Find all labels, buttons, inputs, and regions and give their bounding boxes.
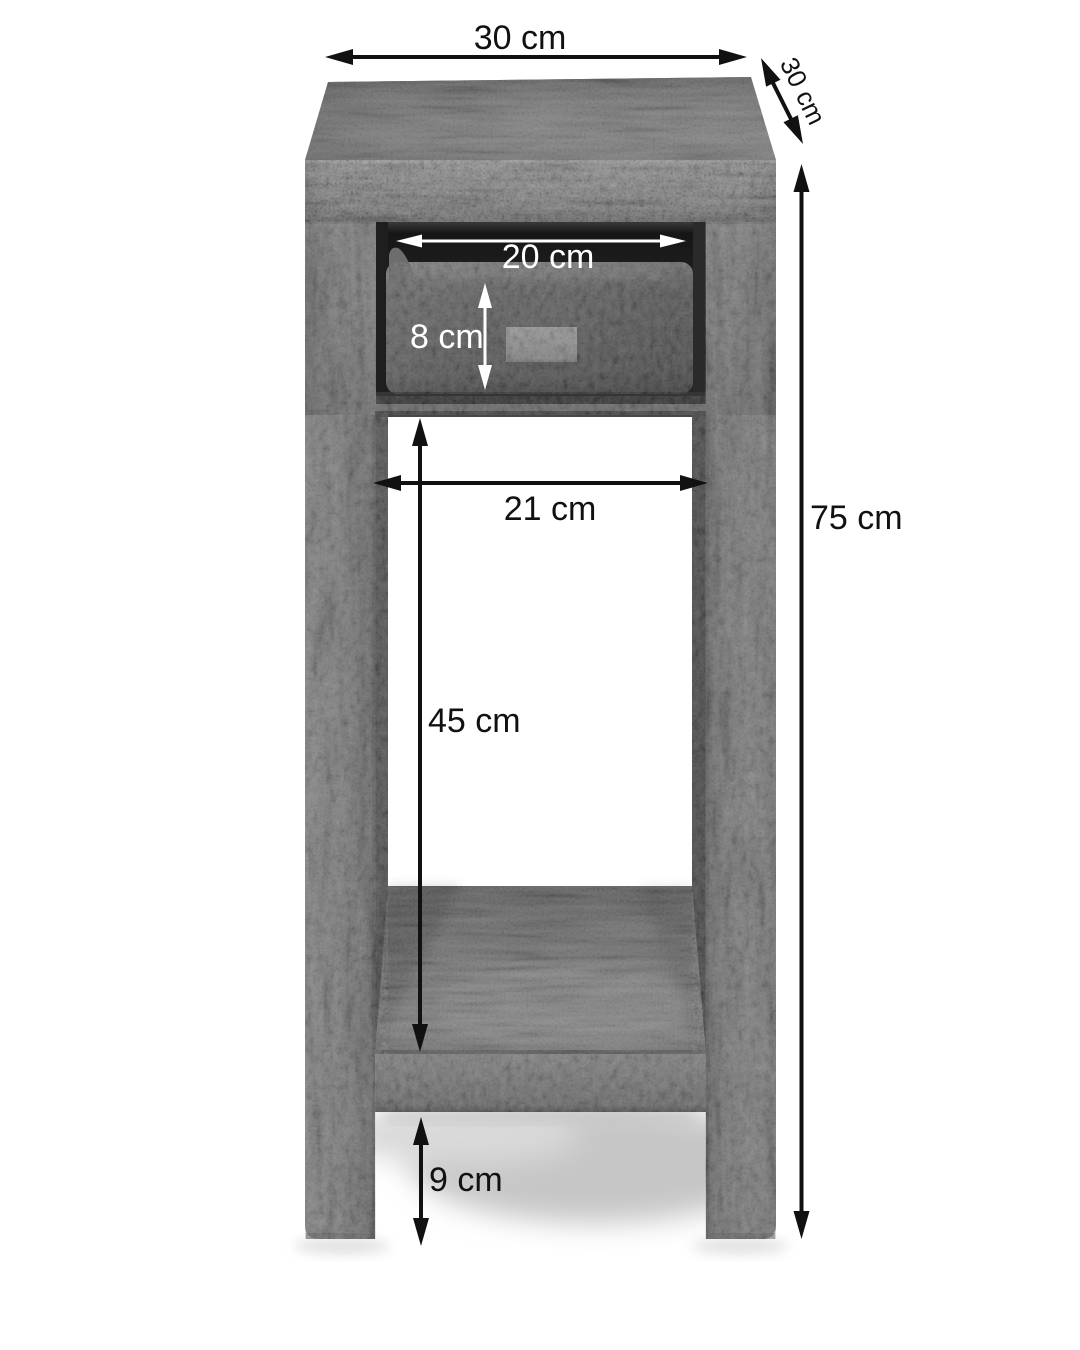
svg-text:75 cm: 75 cm	[810, 499, 903, 537]
svg-text:9 cm: 9 cm	[429, 1161, 503, 1199]
svg-text:21 cm: 21 cm	[504, 490, 597, 528]
svg-text:45 cm: 45 cm	[428, 702, 521, 740]
svg-text:8 cm: 8 cm	[410, 318, 484, 356]
svg-text:20 cm: 20 cm	[502, 238, 595, 276]
svg-text:30 cm: 30 cm	[474, 19, 567, 57]
